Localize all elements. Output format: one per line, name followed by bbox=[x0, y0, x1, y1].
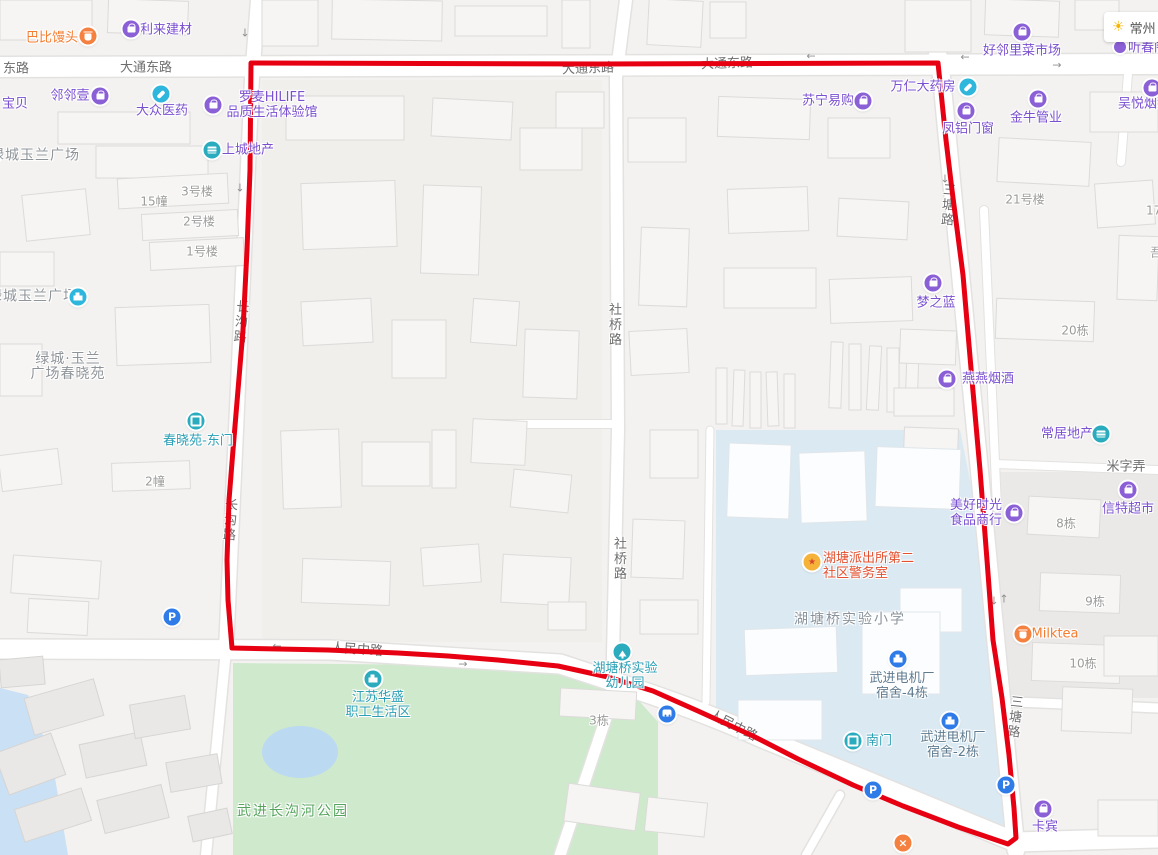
weather-city: 常州 bbox=[1130, 18, 1156, 37]
weather-widget[interactable]: ☀ 常州 bbox=[1104, 12, 1158, 42]
map-canvas[interactable]: 东路大通东路大通东路大通东路人民中路人民中路社桥路社桥路长沟路长沟路三塘路三塘路… bbox=[0, 0, 1158, 855]
widget-layer: ☀ 常州 bbox=[0, 0, 1158, 855]
sun-icon: ☀ bbox=[1112, 19, 1125, 35]
